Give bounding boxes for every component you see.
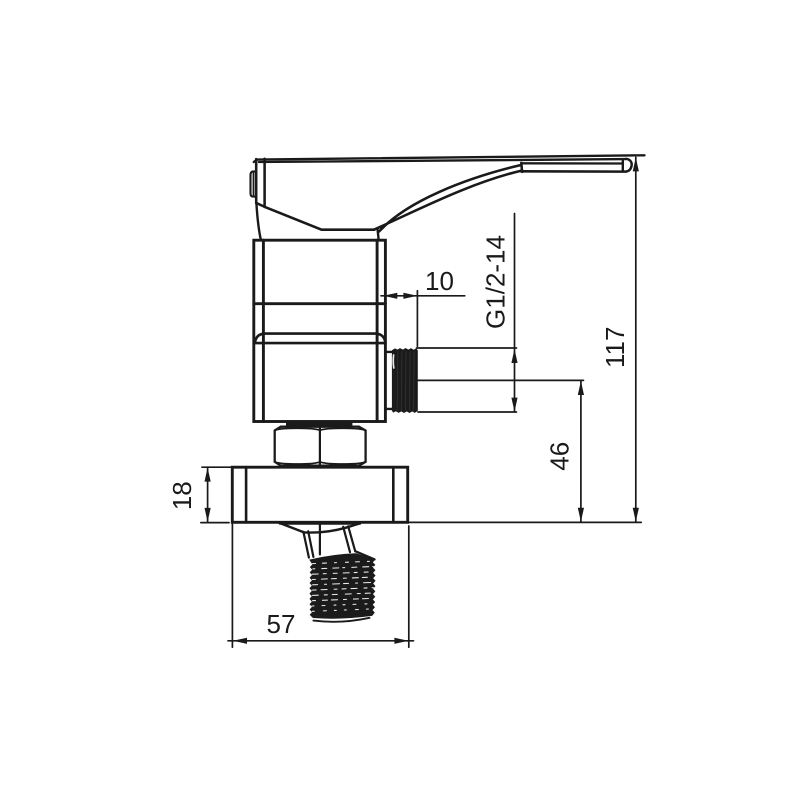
svg-text:46: 46 (545, 442, 575, 471)
svg-text:10: 10 (425, 266, 454, 296)
svg-text:57: 57 (267, 609, 296, 639)
svg-text:G1/2-14: G1/2-14 (481, 235, 511, 329)
svg-text:117: 117 (600, 327, 630, 368)
svg-text:18: 18 (167, 481, 197, 510)
